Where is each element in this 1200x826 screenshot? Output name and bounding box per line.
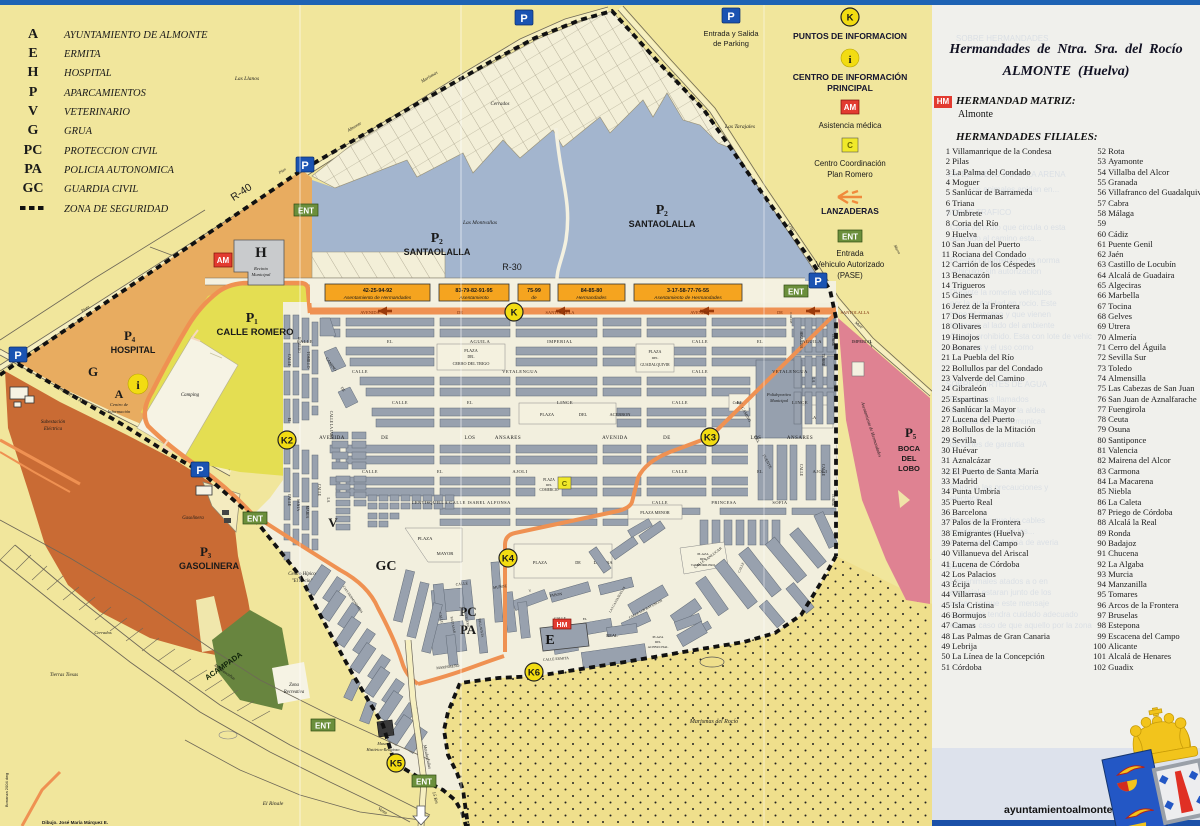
svg-text:PA: PA	[24, 162, 43, 177]
svg-text:ACEBRON: ACEBRON	[610, 412, 632, 417]
svg-text:Tierras Tiesas: Tierras Tiesas	[50, 673, 78, 678]
svg-text:PLAZA: PLAZA	[653, 635, 664, 639]
svg-text:K6: K6	[528, 668, 540, 679]
svg-text:ENT: ENT	[315, 722, 331, 731]
svg-text:PA: PA	[460, 622, 477, 637]
svg-text:P: P	[520, 13, 527, 25]
svg-text:Camping: Camping	[181, 393, 200, 398]
svg-text:ENT: ENT	[788, 288, 804, 297]
svg-text:TORRE: TORRE	[831, 334, 835, 347]
svg-text:PLAZA: PLAZA	[464, 348, 478, 353]
svg-text:P: P	[727, 11, 734, 23]
svg-text:Asentamiento de Hermandades: Asentamiento de Hermandades	[653, 295, 722, 301]
svg-text:AVENIDA: AVENIDA	[690, 310, 710, 315]
svg-text:CALLE: CALLE	[692, 369, 708, 374]
svg-text:CALLE: CALLE	[821, 464, 825, 477]
svg-text:CALLE: CALLE	[789, 313, 793, 324]
svg-text:(PASE): (PASE)	[837, 271, 863, 280]
svg-text:2: 2	[439, 237, 443, 246]
svg-text:Las Llanos: Las Llanos	[234, 76, 259, 82]
svg-text:A: A	[115, 387, 124, 401]
svg-text:AM: AM	[217, 256, 230, 265]
svg-text:Las Montvallas: Las Montvallas	[462, 220, 497, 226]
svg-text:K: K	[847, 13, 854, 24]
svg-text:LOS: LOS	[465, 436, 476, 441]
svg-text:Recinto: Recinto	[253, 266, 269, 271]
svg-text:DEL: DEL	[652, 356, 659, 360]
svg-text:MARIA: MARIA	[305, 506, 309, 519]
svg-text:Polideportivo: Polideportivo	[766, 392, 792, 397]
svg-text:CALLE: CALLE	[362, 469, 378, 474]
svg-text:V: V	[328, 515, 338, 530]
svg-text:EL: EL	[757, 339, 763, 344]
svg-text:P: P	[196, 465, 203, 477]
svg-text:H: H	[28, 65, 39, 80]
svg-text:V: V	[28, 104, 38, 119]
svg-text:CALLE: CALLE	[672, 469, 688, 474]
svg-text:EL: EL	[287, 418, 291, 423]
svg-text:AVENIDA: AVENIDA	[360, 310, 380, 315]
svg-text:75-99: 75-99	[527, 288, 541, 294]
svg-text:P: P	[301, 160, 308, 172]
svg-text:AVENIDA: AVENIDA	[602, 436, 628, 441]
svg-text:ENT: ENT	[842, 233, 858, 242]
svg-text:ENT: ENT	[247, 515, 263, 524]
svg-text:ANSARES: ANSARES	[495, 436, 521, 441]
svg-text:Histórico-Religioso: Histórico-Religioso	[365, 747, 399, 752]
svg-text:P: P	[814, 276, 821, 288]
svg-text:GASOLINERA: GASOLINERA	[179, 561, 240, 571]
svg-text:DEL: DEL	[579, 412, 588, 417]
svg-text:K: K	[511, 308, 518, 319]
svg-text:i: i	[848, 54, 851, 66]
svg-text:Asistencia médica: Asistencia médica	[819, 121, 882, 130]
svg-text:PLAZA: PLAZA	[649, 349, 662, 354]
svg-text:3: 3	[208, 552, 212, 560]
svg-text:CENTRO DE INFORMACIÓN: CENTRO DE INFORMACIÓN	[793, 71, 908, 82]
svg-text:E: E	[545, 633, 554, 648]
svg-text:K5: K5	[390, 759, 403, 770]
svg-text:de Parking: de Parking	[713, 39, 749, 48]
svg-text:E: E	[28, 46, 37, 61]
svg-text:LINCE: LINCE	[792, 400, 808, 405]
svg-text:El Rinale: El Rinale	[262, 801, 284, 807]
svg-text:DE: DE	[381, 436, 389, 441]
svg-text:GC: GC	[376, 559, 397, 574]
svg-text:Asentamiento: Asentamiento	[458, 295, 489, 301]
svg-text:Entrada y Salida: Entrada y Salida	[703, 29, 759, 38]
svg-text:"El Rocío": "El Rocío"	[292, 579, 314, 584]
svg-text:REAL: REAL	[606, 633, 618, 638]
svg-text:AM: AM	[844, 103, 857, 112]
svg-text:TORRE: TORRE	[831, 494, 835, 507]
svg-text:HIGUERA: HIGUERA	[799, 331, 803, 348]
svg-text:Centro de: Centro de	[110, 402, 128, 407]
svg-text:PUNTOS DE INFORMACION: PUNTOS DE INFORMACION	[793, 31, 907, 41]
svg-text:VETALENGUA: VETALENGUA	[502, 369, 538, 374]
svg-text:CALLE ISABEL ALFONSA: CALLE ISABEL ALFONSA	[449, 500, 511, 505]
svg-text:CALLE: CALLE	[317, 484, 321, 497]
svg-text:AGUILA: AGUILA	[802, 339, 822, 344]
svg-text:Dibujo. José María Márquez E.: Dibujo. José María Márquez E.	[42, 820, 108, 825]
svg-text:LANZADERAS: LANZADERAS	[821, 206, 879, 216]
svg-text:Entrada: Entrada	[836, 249, 864, 258]
svg-text:CERRO DEL TRIGO: CERRO DEL TRIGO	[453, 361, 490, 366]
svg-text:Bonanza 2004 dwg: Bonanza 2004 dwg	[4, 773, 9, 807]
svg-text:DE: DE	[575, 560, 581, 565]
svg-text:G: G	[28, 123, 39, 138]
svg-text:PC: PC	[24, 143, 43, 158]
svg-text:POLICIA AUTONOMICA: POLICIA AUTONOMICA	[63, 165, 175, 176]
svg-text:Municipal: Municipal	[769, 398, 789, 403]
svg-text:Marismas del Rocío: Marismas del Rocío	[689, 719, 738, 725]
svg-text:LENTISQUILLA: LENTISQUILLA	[412, 500, 448, 505]
svg-text:ENT: ENT	[416, 778, 432, 787]
svg-text:PLAZA: PLAZA	[533, 560, 548, 565]
svg-text:42-25-94-92: 42-25-94-92	[363, 288, 392, 294]
svg-text:EL: EL	[387, 339, 393, 344]
svg-text:Municipal: Municipal	[251, 272, 272, 277]
svg-text:EL: EL	[737, 400, 743, 405]
svg-text:IMPERIAL: IMPERIAL	[852, 339, 873, 344]
svg-text:5: 5	[913, 433, 917, 441]
svg-text:CALLE: CALLE	[287, 494, 291, 507]
svg-text:BOCA: BOCA	[898, 444, 921, 453]
svg-text:DEL: DEL	[546, 483, 552, 487]
svg-text:SANTOLALLA: SANTOLALLA	[546, 310, 576, 315]
svg-text:LINCE: LINCE	[557, 400, 573, 405]
svg-text:1: 1	[254, 317, 258, 326]
svg-text:P: P	[14, 350, 21, 362]
svg-text:3-17-58-77-76-55: 3-17-58-77-76-55	[667, 288, 709, 294]
svg-text:ANSARES: ANSARES	[787, 436, 813, 441]
svg-text:LA: LA	[811, 377, 815, 382]
svg-text:GUADALQUIVIR: GUADALQUIVIR	[640, 363, 670, 367]
svg-text:SANTOLALLA: SANTOLALLA	[841, 310, 871, 315]
svg-text:Hermandades: Hermandades	[576, 295, 607, 301]
svg-text:CALLE: CALLE	[799, 464, 803, 477]
svg-text:COMERCIO: COMERCIO	[540, 488, 559, 492]
svg-text:DE: DE	[777, 310, 783, 315]
svg-text:EL: EL	[437, 469, 443, 474]
svg-text:CALLE: CALLE	[652, 500, 668, 505]
svg-text:K2: K2	[281, 436, 293, 447]
svg-text:Cerrados: Cerrados	[94, 630, 112, 635]
svg-text:SANTAOLALLA: SANTAOLALLA	[629, 219, 696, 229]
svg-text:APARCAMIENTOS: APARCAMIENTOS	[63, 88, 147, 99]
svg-text:C: C	[847, 141, 853, 150]
svg-text:HM: HM	[557, 622, 568, 629]
svg-text:EL: EL	[757, 469, 763, 474]
svg-text:Plan Romero: Plan Romero	[827, 170, 873, 179]
svg-text:P: P	[29, 85, 38, 100]
svg-text:CALLE LA JARA: CALLE LA JARA	[329, 411, 333, 440]
svg-text:ZONA DE SEGURIDAD: ZONA DE SEGURIDAD	[64, 204, 169, 215]
svg-text:Vehiculo Autorizado: Vehiculo Autorizado	[816, 260, 885, 269]
svg-text:Recreativa: Recreativa	[283, 690, 305, 695]
svg-text:C: C	[562, 479, 568, 488]
svg-text:VETALENGUA: VETALENGUA	[772, 369, 808, 374]
svg-text:AYUNTAMIENTO DE ALMONTE: AYUNTAMIENTO DE ALMONTE	[63, 30, 208, 41]
svg-text:CALLE ROMERO: CALLE ROMERO	[216, 327, 293, 338]
svg-text:PLAZA: PLAZA	[543, 478, 555, 482]
svg-text:CALLE: CALLE	[287, 354, 291, 367]
svg-text:Eléctrica: Eléctrica	[43, 427, 63, 432]
svg-text:H: H	[255, 245, 267, 261]
svg-text:GC: GC	[23, 181, 44, 196]
svg-text:CALLE: CALLE	[672, 400, 688, 405]
svg-text:Centro Coordinación: Centro Coordinación	[814, 159, 886, 168]
svg-text:Gasolinera: Gasolinera	[182, 516, 204, 521]
svg-text:Las Tarajales: Las Tarajales	[724, 124, 755, 130]
svg-text:K4: K4	[502, 554, 515, 565]
svg-text:EL: EL	[467, 400, 473, 405]
svg-text:CALLE: CALLE	[392, 400, 408, 405]
svg-text:K3: K3	[704, 433, 716, 444]
svg-text:CALLE: CALLE	[352, 369, 368, 374]
svg-text:de: de	[531, 295, 537, 301]
svg-text:PRINCESA: PRINCESA	[711, 500, 737, 505]
svg-text:DE: DE	[663, 436, 671, 441]
svg-text:R-30: R-30	[502, 262, 522, 272]
svg-text:84-85-80: 84-85-80	[581, 288, 603, 294]
svg-text:DEL: DEL	[655, 640, 661, 644]
svg-text:G: G	[88, 364, 98, 379]
svg-text:A: A	[28, 27, 39, 42]
svg-text:SOFIA: SOFIA	[772, 500, 788, 505]
svg-text:HOSPITAL: HOSPITAL	[111, 345, 156, 355]
svg-text:Asentamiento de Hermandades: Asentamiento de Hermandades	[343, 295, 412, 301]
svg-text:DEL: DEL	[902, 454, 917, 463]
svg-text:Centro Hípico: Centro Hípico	[288, 572, 316, 577]
svg-text:ACEBUCHAL: ACEBUCHAL	[648, 645, 669, 649]
svg-text:CALLE: CALLE	[692, 339, 708, 344]
svg-text:LOBO: LOBO	[898, 464, 920, 473]
svg-text:AGUILA: AGUILA	[470, 339, 491, 344]
svg-text:EL: EL	[583, 617, 587, 621]
svg-text:VETERINARIO: VETERINARIO	[64, 107, 130, 118]
svg-text:ERMITA: ERMITA	[63, 49, 101, 60]
svg-text:TORRE: TORRE	[821, 354, 825, 367]
svg-text:HOSPITAL: HOSPITAL	[63, 68, 112, 79]
svg-text:GRUA: GRUA	[64, 126, 93, 137]
svg-text:Cerrados: Cerrados	[491, 102, 510, 107]
svg-text:IMPERIAL: IMPERIAL	[547, 339, 573, 344]
svg-text:PROTECCION CIVIL: PROTECCION CIVIL	[63, 146, 158, 157]
svg-text:PLAZA: PLAZA	[418, 536, 433, 541]
svg-text:TOMILLO: TOMILLO	[306, 351, 310, 368]
svg-text:LA: LA	[326, 497, 330, 502]
svg-text:MAYOR: MAYOR	[437, 551, 455, 556]
svg-text:Subestación: Subestación	[41, 420, 66, 425]
svg-text:GUARDIA CIVIL: GUARDIA CIVIL	[64, 184, 138, 195]
svg-text:Información: Información	[107, 409, 131, 414]
svg-text:Zona: Zona	[289, 683, 299, 688]
svg-text:AJOLI: AJOLI	[512, 469, 527, 474]
svg-text:PRINCIPAL: PRINCIPAL	[827, 83, 873, 93]
svg-text:Museo: Museo	[376, 741, 388, 746]
svg-text:DEL: DEL	[468, 355, 475, 359]
svg-text:PLAZA: PLAZA	[540, 412, 555, 417]
svg-text:2: 2	[664, 209, 668, 218]
svg-text:PLAZA MENOR: PLAZA MENOR	[640, 510, 670, 515]
svg-text:4: 4	[132, 336, 136, 344]
